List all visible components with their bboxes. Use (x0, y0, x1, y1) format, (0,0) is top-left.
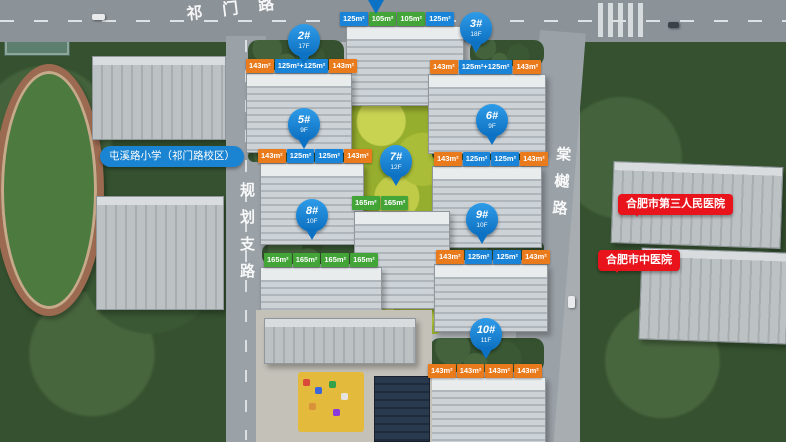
area-tag: 165m² (321, 253, 349, 267)
area-tag: 143m² (430, 60, 458, 74)
school-label[interactable]: 屯溪路小学（祁门路校区） (100, 146, 244, 167)
area-tag: 143m² (344, 149, 372, 163)
area-tag: 125m² (465, 250, 493, 264)
pin-head: 10# 11F (470, 318, 502, 351)
area-tags-building-9: 143m² 125m² 125m² 143m² (436, 250, 550, 264)
pin-label: 2# (298, 31, 310, 43)
pin-head: 6# 9F (476, 104, 508, 137)
area-tag: 143m² (329, 59, 357, 73)
area-tags-building-8: 165m² 165m² 165m² 165m² (264, 253, 378, 267)
playground-equipment (302, 376, 303, 377)
hospital-label-tcm[interactable]: 合肥市中医院 (598, 250, 680, 271)
hospital-label-third-peoples[interactable]: 合肥市第三人民医院 (618, 194, 733, 215)
pin-label: 8# (306, 206, 318, 218)
area-tag: 125m² (426, 12, 454, 26)
area-tag: 143m² (520, 152, 548, 166)
area-tag: 125m² (340, 12, 368, 26)
vehicle (668, 22, 679, 28)
pin-floors: 17F (298, 43, 309, 50)
kindergarten-building (264, 318, 416, 364)
pin-floors: 12F (390, 164, 401, 171)
area-tag: 125m² (315, 149, 343, 163)
pin-floors: 18F (470, 31, 481, 38)
pin-head: 9# 10F (466, 203, 498, 236)
pin-label: 5# (298, 115, 310, 127)
pin-label: 7# (390, 152, 402, 164)
pin-head: 7# 12F (380, 145, 412, 178)
pin-floors: 11F (481, 337, 492, 344)
pin-head: 5# 9F (288, 108, 320, 141)
area-tags-building-6: 143m² 125m² 125m² 143m² (434, 152, 548, 166)
kindergarten-playground (298, 372, 364, 432)
pin-head: 3# 18F (460, 12, 492, 45)
pin-building-3[interactable]: 3# 18F (460, 12, 492, 45)
pin-label: 6# (486, 111, 498, 123)
area-tag: 143m² (457, 364, 485, 378)
school-building (96, 196, 224, 310)
area-tags-building-5: 143m² 125m² 125m² 143m² (258, 149, 372, 163)
area-tag: 143m² (485, 364, 513, 378)
pin-floors: 9F (300, 127, 308, 134)
area-tag: 143m² (258, 149, 286, 163)
area-tag: 143m² (522, 250, 550, 264)
pin-building-6[interactable]: 6# 9F (476, 104, 508, 137)
area-tag: 105m² (397, 12, 425, 26)
area-tag: 125m² (463, 152, 491, 166)
pin-building-2[interactable]: 2# 17F (288, 24, 320, 57)
area-tag: 143m² (436, 250, 464, 264)
pin-building-8[interactable]: 8# 10F (296, 199, 328, 232)
pin-floors: 9F (488, 123, 496, 130)
area-tag: 143m² (428, 364, 456, 378)
area-tag: 165m² (293, 253, 321, 267)
crosswalk (598, 3, 644, 37)
pin-building-10[interactable]: 10# 11F (470, 318, 502, 351)
pin-label: 10# (477, 325, 495, 337)
area-tag: 143m² (513, 60, 541, 74)
area-tag: 165m² (350, 253, 378, 267)
pin-head: 2# 17F (288, 24, 320, 57)
pin-partial-top[interactable] (368, 0, 384, 22)
area-tags-building-7: 165m² 165m² (352, 196, 408, 210)
school-building (92, 56, 226, 140)
pin-label: 3# (470, 19, 482, 31)
area-tag: 125m²+125m² (459, 60, 513, 74)
area-tag: 125m² (493, 250, 521, 264)
area-tags-building-3: 143m² 125m²+125m² 143m² (430, 60, 541, 74)
pin-building-9[interactable]: 9# 10F (466, 203, 498, 236)
pin-floors: 10F (476, 222, 487, 229)
area-tag: 125m² (491, 152, 519, 166)
site-plan-aerial-view: 祁门路 规划支路 棠樾路 125m² 105m² 105m² 125m² 143… (0, 0, 786, 442)
vehicle (568, 296, 575, 308)
area-tag: 165m² (264, 253, 292, 267)
area-tags-building-10: 143m² 143m² 143m² 143m² (428, 364, 542, 378)
area-tags-building-1: 125m² 105m² 105m² 125m² (340, 12, 454, 26)
residential-building-10 (426, 377, 546, 442)
pin-floors: 10F (306, 218, 317, 225)
area-tag: 165m² (352, 196, 380, 210)
area-tag: 143m² (514, 364, 542, 378)
area-tag: 165m² (381, 196, 409, 210)
solar-panel-roof (374, 376, 430, 442)
area-tag: 143m² (246, 59, 274, 73)
pin-building-5[interactable]: 5# 9F (288, 108, 320, 141)
pin-label: 9# (476, 210, 488, 222)
road-name-guihua-zhilu: 规划支路 (236, 182, 257, 290)
pin-building-7[interactable]: 7# 12F (380, 145, 412, 178)
pin-head: 8# 10F (296, 199, 328, 232)
vehicle (92, 14, 105, 20)
area-tag: 143m² (434, 152, 462, 166)
